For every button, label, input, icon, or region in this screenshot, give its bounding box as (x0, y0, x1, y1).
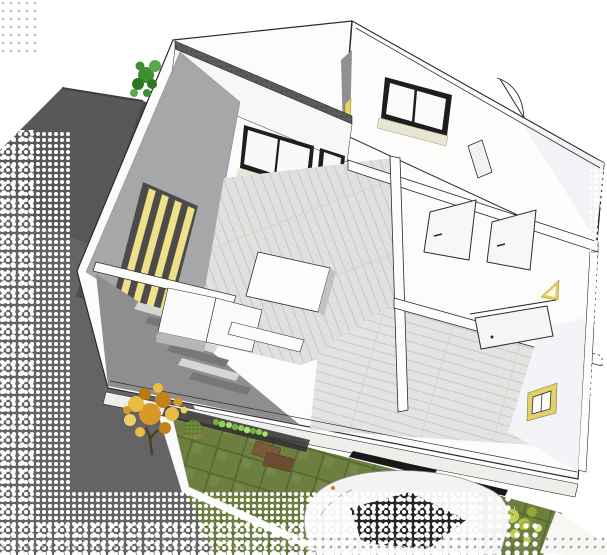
bottom-specks (0, 536, 607, 550)
car-mirror (331, 486, 335, 490)
corner-specks (2, 2, 42, 58)
architectural-render (0, 0, 607, 555)
door-handle (491, 336, 494, 339)
render-canvas (0, 0, 607, 555)
